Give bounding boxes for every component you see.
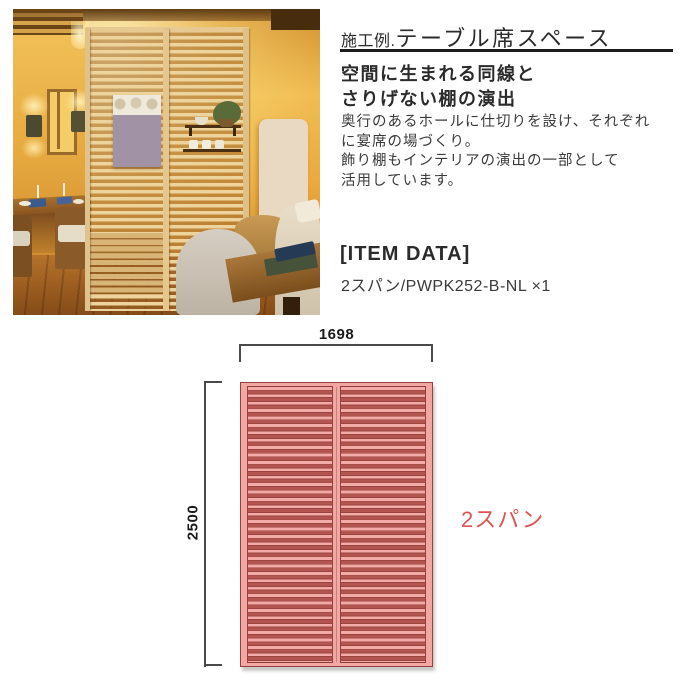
description-heading-line-1: 空間に生まれる同線と bbox=[341, 62, 536, 87]
photo-ceiling-beam bbox=[271, 9, 320, 30]
height-dimension-tick bbox=[204, 381, 222, 383]
photo-shelf-bracket bbox=[233, 128, 236, 136]
photo-wall-sconce bbox=[26, 115, 42, 137]
photo-wine-glass bbox=[63, 183, 65, 196]
photo-blue-napkin bbox=[29, 198, 47, 207]
description-body-line-4: 活用しています。 bbox=[341, 172, 650, 192]
photo-window-bar bbox=[57, 89, 60, 149]
photo-table-leg bbox=[283, 297, 300, 315]
photo-wine-glass bbox=[37, 185, 39, 198]
installation-example-photo bbox=[13, 9, 320, 315]
description-heading-line-2: さりげない棚の演出 bbox=[341, 87, 536, 112]
panel-center-stile bbox=[336, 387, 337, 662]
width-dimension-line bbox=[240, 344, 433, 346]
height-dimension-label: 2500 bbox=[185, 493, 202, 553]
photo-partition-post bbox=[85, 29, 90, 311]
height-dimension-line bbox=[204, 382, 206, 667]
photo-cup bbox=[215, 140, 224, 149]
description-body-line-1: 奥行のあるホールに仕切りを設け、それぞれ bbox=[341, 113, 650, 133]
photo-chair-cushion bbox=[58, 225, 88, 242]
panel-span-right bbox=[340, 386, 426, 663]
description-body: 奥行のあるホールに仕切りを設け、それぞれ に宴席の場づくり。 飾り棚もインテリア… bbox=[341, 113, 650, 191]
photo-partition-post bbox=[163, 29, 169, 311]
description-body-line-2: に宴席の場づくり。 bbox=[341, 133, 650, 153]
photo-cup bbox=[202, 140, 211, 149]
photo-wood-chair bbox=[13, 215, 32, 277]
item-data-spec: 2スパン/PWPK252-B-NL ×1 bbox=[341, 272, 551, 296]
width-dimension-tick bbox=[431, 344, 433, 362]
item-data-heading: [ITEM DATA] bbox=[340, 243, 470, 266]
title-prefix: 施工例. bbox=[341, 27, 395, 51]
photo-display-shelf bbox=[183, 149, 241, 152]
photo-shelf-bracket bbox=[189, 128, 192, 136]
photo-wall-sconce bbox=[71, 111, 86, 132]
width-dimension-tick bbox=[239, 344, 241, 362]
description-heading: 空間に生まれる同線と さりげない棚の演出 bbox=[341, 62, 536, 112]
height-dimension-tick bbox=[204, 664, 222, 666]
photo-plate bbox=[19, 201, 31, 206]
photo-art-panel-pattern bbox=[113, 95, 161, 115]
description-body-line-3: 飾り棚もインテリアの演出の一部として bbox=[341, 152, 650, 172]
photo-slat-partition-lower bbox=[88, 233, 164, 295]
title-underline bbox=[340, 49, 673, 52]
photo-plant-pot bbox=[219, 119, 234, 127]
photo-plate bbox=[73, 199, 84, 204]
catalog-page: 施工例. テーブル席スペース 空間に生まれる同線と さりげない棚の演出 奥行のあ… bbox=[0, 0, 680, 680]
photo-cup bbox=[189, 140, 198, 149]
span-count-label: 2スパン bbox=[461, 502, 544, 534]
panel-span-left bbox=[247, 386, 333, 663]
width-dimension-label: 1698 bbox=[240, 326, 433, 343]
photo-sconce-glow bbox=[21, 137, 47, 159]
photo-chair-cushion bbox=[13, 231, 30, 246]
panel-elevation-drawing bbox=[240, 382, 433, 667]
